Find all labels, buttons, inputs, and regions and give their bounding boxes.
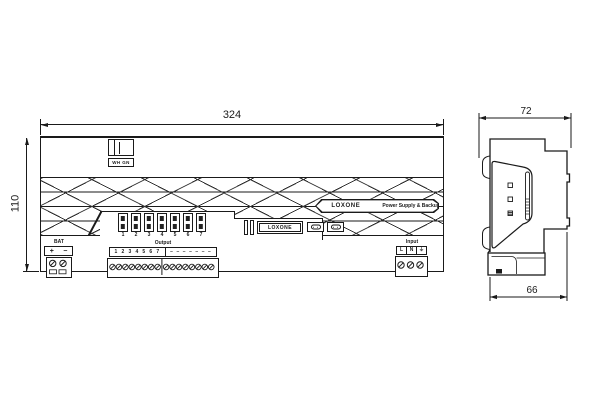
input-screw-block <box>395 256 428 277</box>
side-view: 72 <box>470 100 580 310</box>
input-legend: L N ⏚ <box>396 246 427 255</box>
fuse-connector <box>183 213 193 232</box>
dim-height-value: 110 <box>10 189 23 219</box>
fuse-number: 5 <box>170 232 180 238</box>
arrow-left-icon <box>41 123 48 127</box>
fuse-connector <box>170 213 180 232</box>
terminal-hooks <box>483 156 491 250</box>
loxone-display-label: LOXONE <box>259 223 301 232</box>
loxone-display: LOXONE <box>257 221 303 234</box>
bat-minus: − <box>63 248 67 255</box>
recess-bar <box>250 220 254 235</box>
status-led-left <box>307 222 324 232</box>
output-legend: 1 2 3 4 5 6 7 − − − − − − − <box>109 247 217 257</box>
arrow-down-icon <box>25 264 29 271</box>
dim-line <box>41 124 443 125</box>
output-screws <box>108 259 216 275</box>
fuse-number: 3 <box>144 232 154 238</box>
earth-icon: ⏚ <box>416 247 426 254</box>
ext-line <box>23 271 39 272</box>
bat-label: BAT <box>44 239 74 245</box>
bat-screws <box>47 258 69 275</box>
ext-line <box>40 119 41 135</box>
arrow-right-icon <box>436 123 443 127</box>
input-live: L <box>397 247 406 254</box>
bat-plus: + <box>50 248 54 255</box>
bat-polarity-box: + − <box>44 246 73 256</box>
ext-line <box>443 119 444 135</box>
brand-logo-text: LOXONE <box>331 203 360 209</box>
fuse-number: 6 <box>183 232 193 238</box>
output-screw-block <box>107 258 219 278</box>
arrow-up-icon <box>25 138 29 145</box>
arrow-left-icon <box>479 116 486 120</box>
output-numbers: 1 2 3 4 5 6 7 <box>110 248 165 256</box>
fuse-number: 2 <box>131 232 141 238</box>
bat-screw-block <box>46 257 72 278</box>
fuse-number: 1 <box>118 232 128 238</box>
fuse-connector <box>196 213 206 232</box>
connector-divider <box>119 142 120 154</box>
dim-line <box>26 138 27 271</box>
link-connector-label: WH GN <box>108 158 134 168</box>
technical-drawing: 324 110 WH GN <box>0 0 600 400</box>
input-screws <box>396 257 425 274</box>
input-neutral: N <box>406 247 416 254</box>
arrow-left-icon <box>490 295 497 299</box>
arrow-right-icon <box>560 295 567 299</box>
output-spares: − − − − − − − <box>165 248 216 256</box>
output-label: Output <box>138 240 188 246</box>
input-label: Input <box>396 239 428 245</box>
brand-badge: LOXONE Power Supply & Backup <box>315 199 439 213</box>
fuse-number: 4 <box>157 232 167 238</box>
led-pill-icon <box>331 225 341 230</box>
connector-divider <box>114 140 115 155</box>
side-bottom-block <box>488 253 545 275</box>
vent-slot <box>526 172 530 220</box>
brand-badge-face: LOXONE Power Supply & Backup <box>316 200 437 211</box>
fuse-connector <box>157 213 167 232</box>
fuse-number: 7 <box>196 232 206 238</box>
dim-depth-value: 72 <box>520 106 532 117</box>
link-connector <box>108 139 134 156</box>
recess-bar <box>244 220 248 235</box>
product-name-text: Power Supply & Backup <box>382 203 440 209</box>
fuse-connector <box>144 213 154 232</box>
dim-width-value: 324 <box>208 109 256 122</box>
fuse-connector <box>131 213 141 232</box>
led-pill-icon <box>311 225 321 230</box>
fuse-connector <box>118 213 128 232</box>
dim-base-depth-value: 66 <box>526 285 538 296</box>
arrow-right-icon <box>564 116 571 120</box>
status-led-right <box>327 222 344 232</box>
